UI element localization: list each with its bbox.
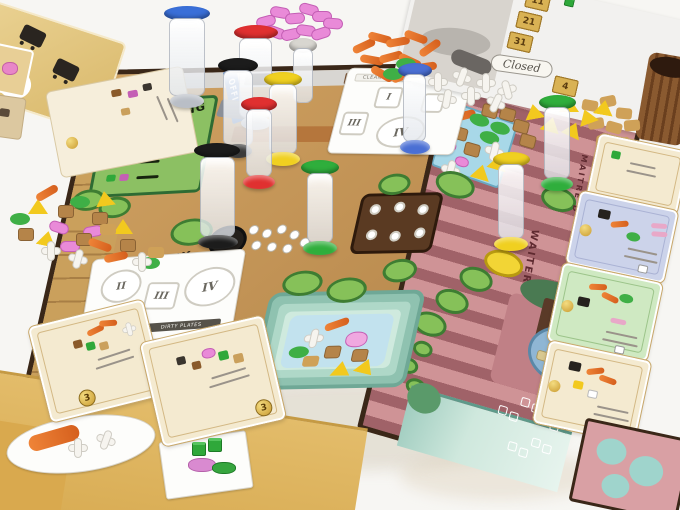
shopping-cart-icon [52, 57, 81, 82]
shopping-cart-icon [19, 24, 48, 49]
basket-opening [648, 54, 680, 81]
dough-token[interactable] [148, 247, 164, 258]
flour-bag-token[interactable] [519, 132, 537, 149]
kitchen-table [349, 192, 445, 254]
flour-bag-token[interactable] [58, 205, 74, 218]
dough-token[interactable] [302, 356, 320, 367]
bread-token[interactable] [615, 107, 632, 120]
mini-spot[interactable] [411, 338, 434, 359]
card-stub[interactable] [0, 94, 27, 140]
flour-bag-token[interactable] [323, 346, 342, 359]
table-scene: MAITRE D' WAITER SHOPPING [0, 0, 680, 510]
plate-size-3[interactable]: III [142, 282, 180, 309]
bone-token[interactable] [435, 87, 458, 110]
flour-bag-token[interactable] [120, 239, 136, 252]
green-cube-token[interactable] [208, 438, 222, 452]
bone-token[interactable] [461, 86, 481, 106]
closed-sign: Closed [490, 53, 554, 78]
carrot-token[interactable] [35, 184, 60, 203]
score-space: 21 [515, 11, 542, 33]
score-marker-cube[interactable] [563, 0, 575, 8]
bone-token[interactable] [68, 438, 88, 458]
plate-size-3[interactable]: III [338, 112, 370, 136]
plate-size-1[interactable]: I [373, 87, 404, 109]
score-space: 31 [506, 31, 533, 53]
price-row [105, 170, 197, 185]
pink-token[interactable] [2, 62, 18, 75]
cheese-token[interactable] [28, 199, 48, 214]
green-disc-token[interactable] [212, 462, 236, 474]
flour-bag-token[interactable] [18, 228, 34, 241]
bone-token[interactable] [41, 241, 61, 261]
mini-coin-icon [65, 136, 79, 150]
green-cube-token[interactable] [192, 442, 206, 456]
herb-token[interactable] [10, 213, 30, 225]
flour-bag-token[interactable] [350, 349, 369, 362]
action-spot[interactable] [433, 285, 471, 318]
score-space: 11 [524, 0, 551, 12]
station-card [568, 417, 680, 510]
sausage-token[interactable] [285, 12, 306, 25]
sausage-token[interactable] [323, 17, 344, 30]
dough-token[interactable] [100, 224, 116, 235]
plate-size-4[interactable]: IV [184, 262, 236, 310]
bread-token[interactable] [624, 119, 641, 131]
